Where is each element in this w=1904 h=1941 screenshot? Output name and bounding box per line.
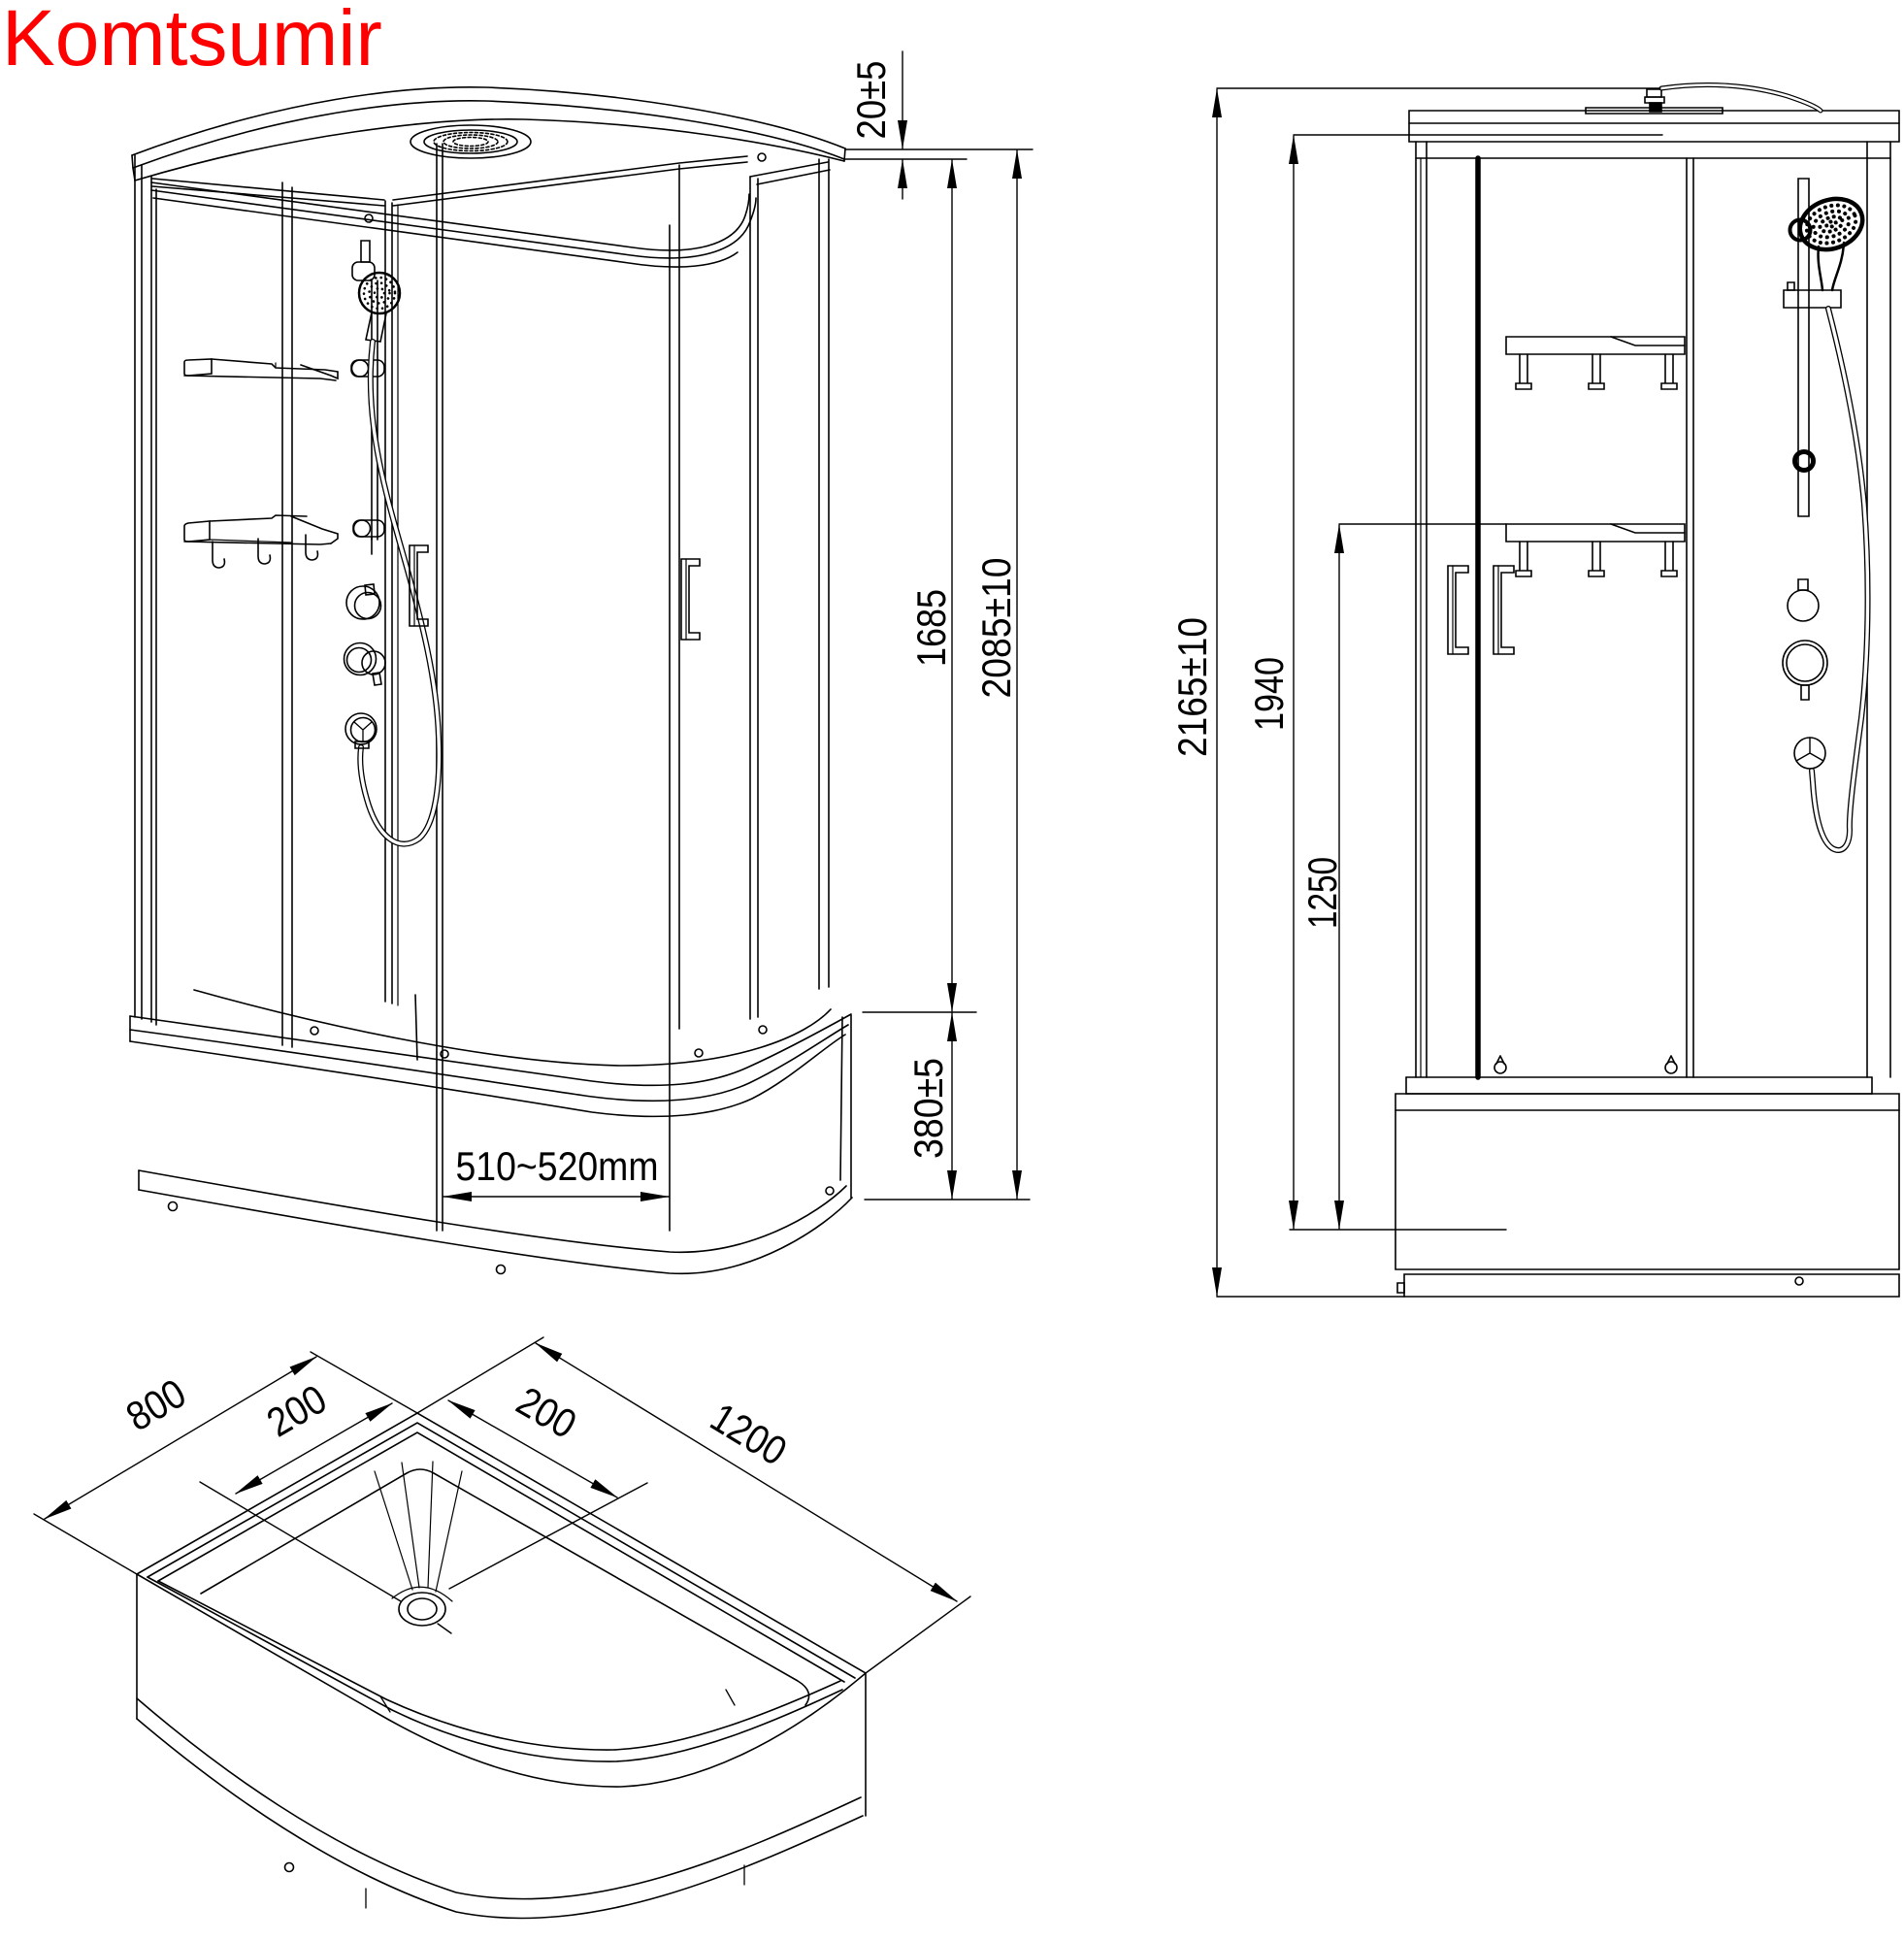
svg-text:1685: 1685 <box>908 589 954 667</box>
svg-text:1940: 1940 <box>1246 657 1292 731</box>
svg-text:2085±10: 2085±10 <box>973 558 1019 699</box>
svg-text:380±5: 380±5 <box>905 1058 951 1159</box>
svg-text:Komtsumir: Komtsumir <box>2 0 382 82</box>
svg-text:20±5: 20±5 <box>848 61 894 140</box>
svg-text:200: 200 <box>259 1376 334 1446</box>
svg-text:510~520mm: 510~520mm <box>456 1143 659 1189</box>
svg-text:1200: 1200 <box>703 1394 794 1474</box>
svg-text:1250: 1250 <box>1299 857 1345 929</box>
svg-text:800: 800 <box>118 1370 193 1440</box>
svg-text:2165±10: 2165±10 <box>1169 617 1215 757</box>
svg-text:200: 200 <box>509 1378 584 1448</box>
